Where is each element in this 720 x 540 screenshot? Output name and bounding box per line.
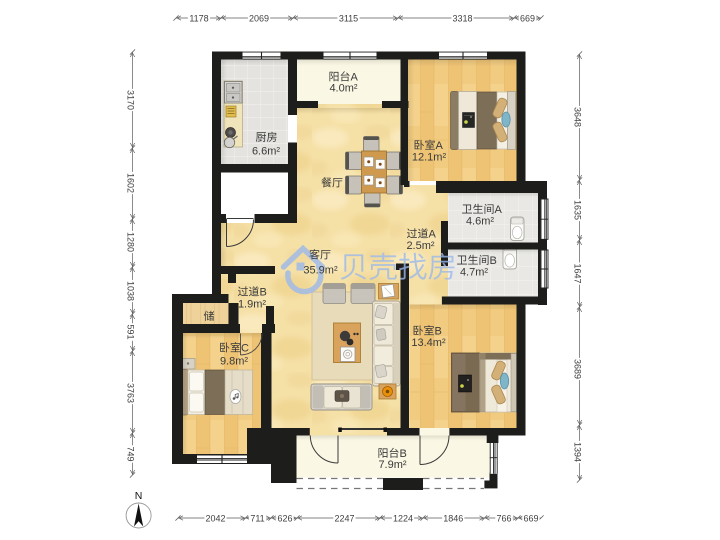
svg-text:35.9m²: 35.9m² <box>303 265 338 277</box>
svg-text:C: C <box>241 343 249 355</box>
svg-text:1647: 1647 <box>572 263 582 283</box>
svg-text:669: 669 <box>520 13 535 23</box>
svg-text:3689: 3689 <box>572 359 582 379</box>
svg-text:1602: 1602 <box>125 173 135 193</box>
svg-text:1846: 1846 <box>443 513 463 523</box>
svg-text:3115: 3115 <box>339 13 358 23</box>
svg-text:591: 591 <box>125 324 135 339</box>
svg-text:749: 749 <box>125 446 135 461</box>
svg-text:B: B <box>490 255 497 267</box>
svg-text:3648: 3648 <box>572 107 582 127</box>
svg-text:3170: 3170 <box>125 90 135 110</box>
svg-text:3763: 3763 <box>125 383 135 403</box>
svg-text:1394: 1394 <box>572 442 582 462</box>
svg-text:2.5m²: 2.5m² <box>406 240 434 252</box>
svg-text:711: 711 <box>250 513 264 523</box>
svg-text:9.8m²: 9.8m² <box>220 356 248 368</box>
svg-text:2247: 2247 <box>334 513 354 523</box>
svg-text:4.6m²: 4.6m² <box>466 216 494 228</box>
svg-text:669: 669 <box>523 513 538 523</box>
svg-text:4.0m²: 4.0m² <box>329 83 357 95</box>
svg-text:1280: 1280 <box>125 232 135 252</box>
svg-text:6.6m²: 6.6m² <box>252 146 280 158</box>
svg-text:B: B <box>260 287 267 299</box>
svg-text:A: A <box>429 229 437 241</box>
svg-text:A: A <box>495 204 503 216</box>
svg-text:A: A <box>436 140 444 152</box>
svg-text:2042: 2042 <box>205 513 225 523</box>
svg-text:1178: 1178 <box>189 13 208 23</box>
svg-text:2069: 2069 <box>249 13 269 23</box>
svg-text:12.1m²: 12.1m² <box>412 152 447 164</box>
svg-text:1635: 1635 <box>572 200 582 220</box>
svg-text:1224: 1224 <box>393 513 413 523</box>
svg-text:1038: 1038 <box>125 281 135 301</box>
svg-text:B: B <box>435 326 442 338</box>
svg-text:13.4m²: 13.4m² <box>411 337 446 349</box>
svg-text:4.7m²: 4.7m² <box>460 267 488 279</box>
svg-text:3318: 3318 <box>452 13 472 23</box>
svg-text:7.9m²: 7.9m² <box>378 459 406 471</box>
svg-text:766: 766 <box>496 513 511 523</box>
svg-text:626: 626 <box>277 513 292 523</box>
svg-text:N: N <box>135 490 143 502</box>
svg-text:1.9m²: 1.9m² <box>238 299 266 311</box>
